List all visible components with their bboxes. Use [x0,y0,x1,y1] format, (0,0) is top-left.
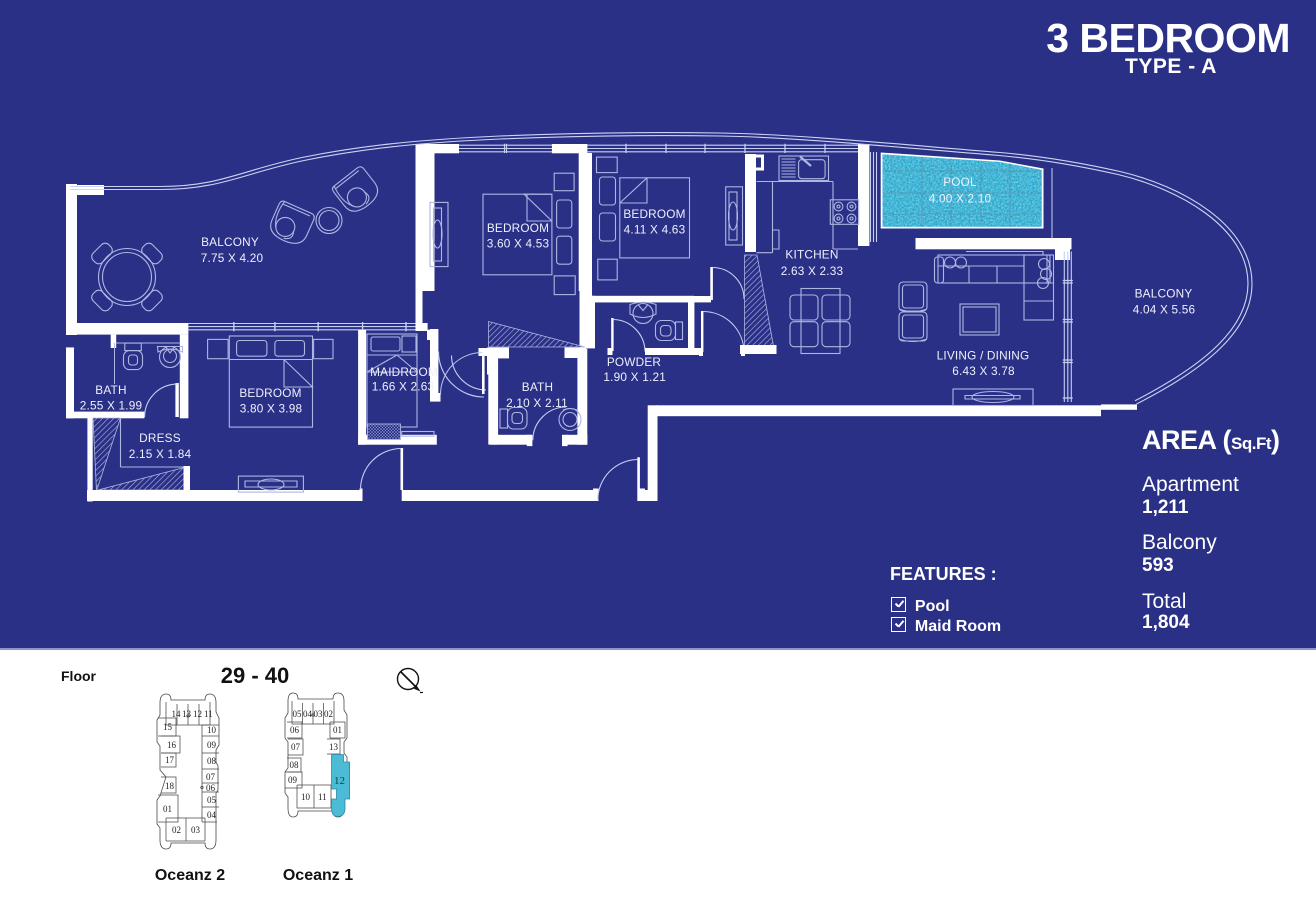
svg-text:01: 01 [163,804,172,814]
svg-text:13: 13 [182,709,192,719]
svg-text:02: 02 [172,825,181,835]
svg-text:11: 11 [204,709,213,719]
svg-text:14: 14 [172,709,182,719]
svg-text:03: 03 [314,709,324,719]
svg-text:05: 05 [207,795,217,805]
svg-text:4.11 X 4.63: 4.11 X 4.63 [624,223,686,237]
svg-text:6.43 X 3.78: 6.43 X 3.78 [952,364,1015,378]
svg-text:BEDROOM: BEDROOM [623,207,685,221]
svg-text:BALCONY: BALCONY [201,235,259,249]
svg-text:DRESS: DRESS [139,431,181,445]
svg-text:3.80 X 3.98: 3.80 X 3.98 [240,402,303,416]
svg-text:09: 09 [288,775,298,785]
svg-text:2.10 X 2.11: 2.10 X 2.11 [506,396,568,410]
svg-text:07: 07 [206,772,216,782]
svg-text:LIVING / DINING: LIVING / DINING [937,349,1030,363]
svg-text:04: 04 [207,810,217,820]
svg-text:4.04 X 5.56: 4.04 X 5.56 [1133,303,1196,317]
svg-text:BATH: BATH [522,380,553,394]
svg-text:BEDROOM: BEDROOM [239,386,301,400]
svg-text:16: 16 [167,740,177,750]
svg-text:10: 10 [207,725,217,735]
svg-text:04: 04 [303,709,313,719]
svg-text:2.63 X 2.33: 2.63 X 2.33 [781,264,844,278]
svg-text:08: 08 [290,760,300,770]
svg-text:POOL: POOL [943,175,977,189]
svg-text:7.75 X 4.20: 7.75 X 4.20 [201,251,264,265]
svg-text:15: 15 [163,722,173,732]
svg-text:1.66 X 2.63: 1.66 X 2.63 [372,380,435,394]
svg-text:BATH: BATH [95,383,126,397]
svg-text:12: 12 [193,709,202,719]
svg-text:17: 17 [165,755,175,765]
svg-text:18: 18 [165,781,175,791]
svg-text:4.00 X 2.10: 4.00 X 2.10 [929,192,992,206]
svg-text:06: 06 [206,783,216,793]
svg-text:09: 09 [207,740,217,750]
svg-text:2.55 X 1.99: 2.55 X 1.99 [80,399,143,413]
svg-text:08: 08 [207,756,217,766]
svg-text:1.90 X 1.21: 1.90 X 1.21 [603,370,666,384]
svg-text:KITCHEN: KITCHEN [785,248,838,262]
svg-text:2.15 X 1.84: 2.15 X 1.84 [129,447,192,461]
svg-text:MAIDROOM: MAIDROOM [370,365,438,379]
svg-text:10: 10 [301,792,311,802]
svg-text:BEDROOM: BEDROOM [487,221,549,235]
svg-text:02: 02 [324,709,333,719]
svg-text:05: 05 [293,709,303,719]
svg-text:POWDER: POWDER [607,355,661,369]
svg-text:13: 13 [329,742,339,752]
svg-text:BALCONY: BALCONY [1135,287,1193,301]
svg-text:12: 12 [334,775,345,787]
svg-text:06: 06 [290,725,300,735]
svg-text:03: 03 [191,825,201,835]
svg-text:11: 11 [318,792,327,802]
svg-text:3.60 X 4.53: 3.60 X 4.53 [487,237,550,251]
svg-text:01: 01 [333,725,342,735]
svg-text:07: 07 [291,742,301,752]
